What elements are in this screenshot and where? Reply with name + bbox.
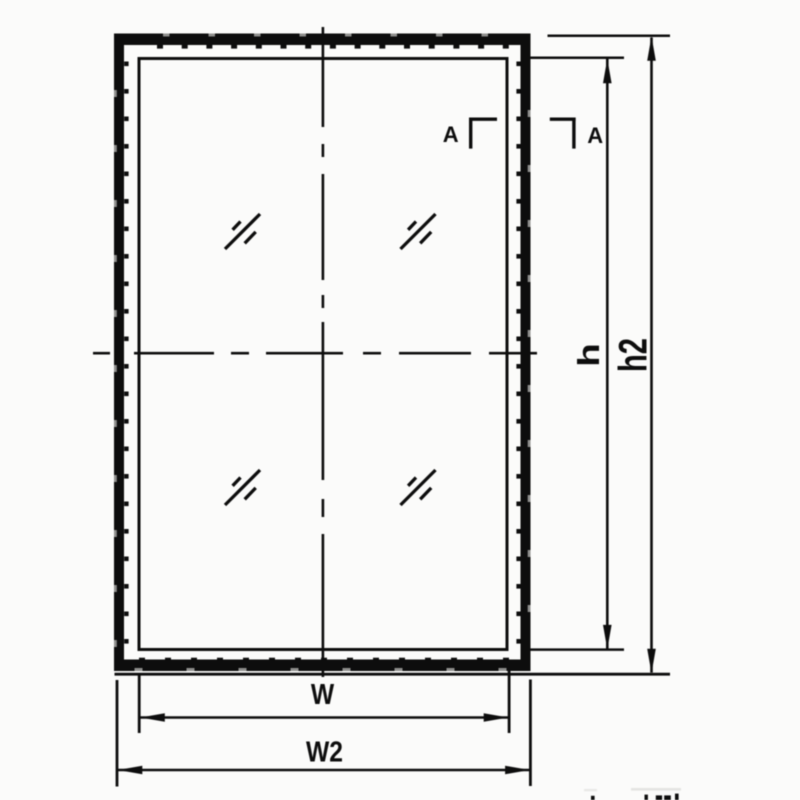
- svg-text:A: A: [443, 122, 459, 147]
- svg-text:h2: h2: [611, 338, 655, 372]
- svg-text:W2: W2: [306, 736, 343, 768]
- svg-text:A: A: [587, 123, 603, 148]
- svg-text:W: W: [311, 678, 335, 710]
- svg-text:h: h: [572, 343, 606, 367]
